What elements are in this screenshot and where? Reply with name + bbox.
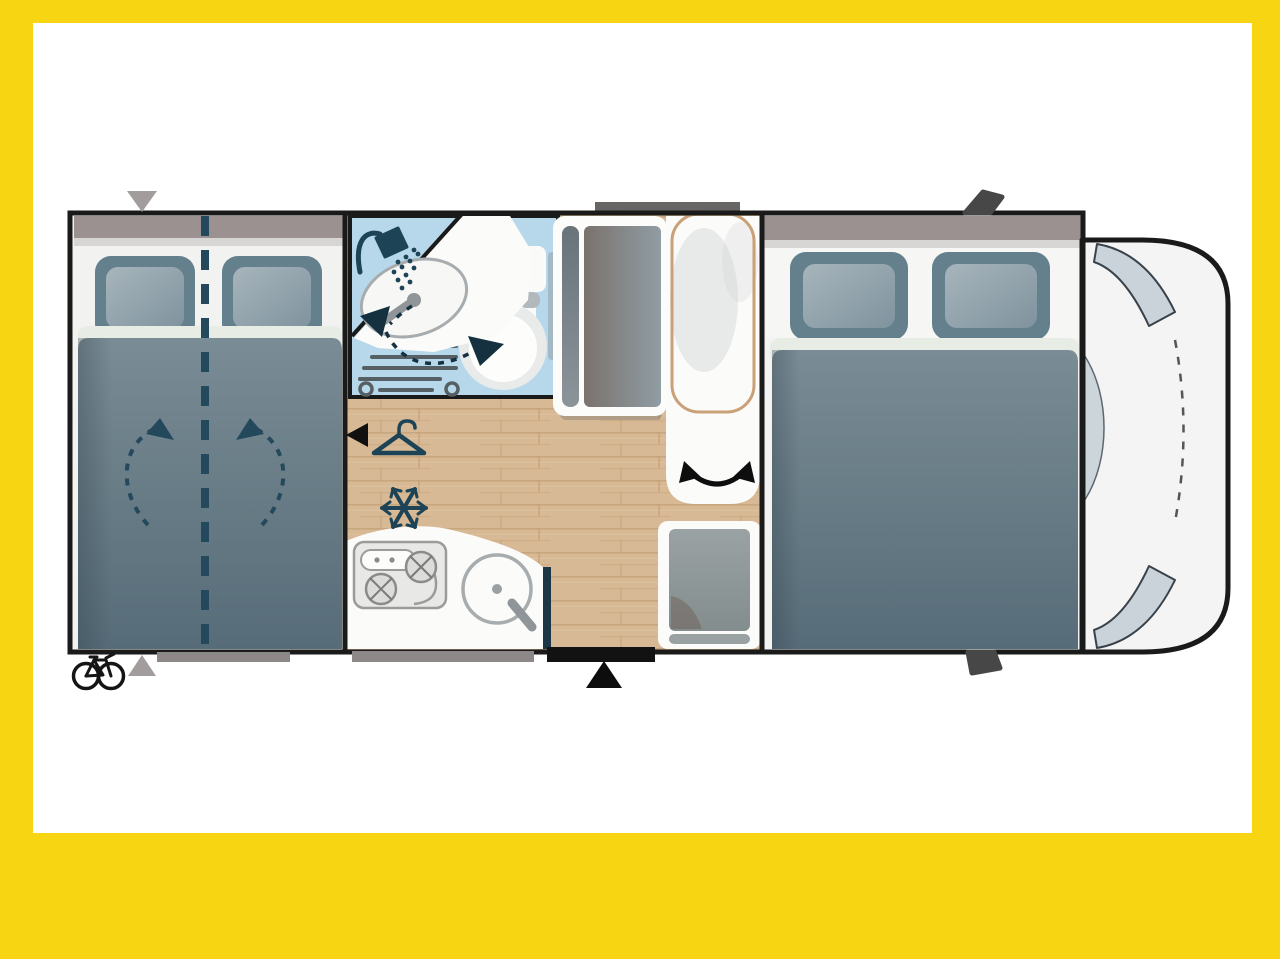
window-marker-triangle-bottom: [128, 655, 156, 676]
front-bed-pillow-left: [790, 252, 908, 340]
swivel-seat: [666, 214, 760, 504]
rear-bed: [72, 215, 346, 652]
bicycle-icon: [74, 654, 124, 689]
floorplan-illustration: [0, 0, 1280, 959]
skirt-bar-left: [157, 652, 290, 662]
side-seat: [658, 521, 761, 649]
page-background: GmbH REISEMOBILE Mobile Freizeit genieße…: [0, 0, 1280, 959]
mirror-icon-bottom: [968, 652, 1000, 673]
stove: [354, 542, 446, 608]
entry-arrow-icon: [586, 661, 622, 688]
front-bed-pillow-right: [932, 252, 1050, 340]
front-bed-blanket: [772, 350, 1078, 649]
window-marker-triangle-top: [127, 191, 157, 212]
bathroom: [350, 214, 558, 397]
mirror-icon-top: [965, 192, 1002, 213]
front-bed: [764, 215, 1081, 652]
rear-bed-blanket: [78, 338, 342, 649]
branding-bar: GmbH REISEMOBILE Mobile Freizeit genieße…: [0, 833, 1280, 959]
entry-door: [547, 647, 655, 662]
skirt-bar-kitchen: [352, 651, 534, 662]
